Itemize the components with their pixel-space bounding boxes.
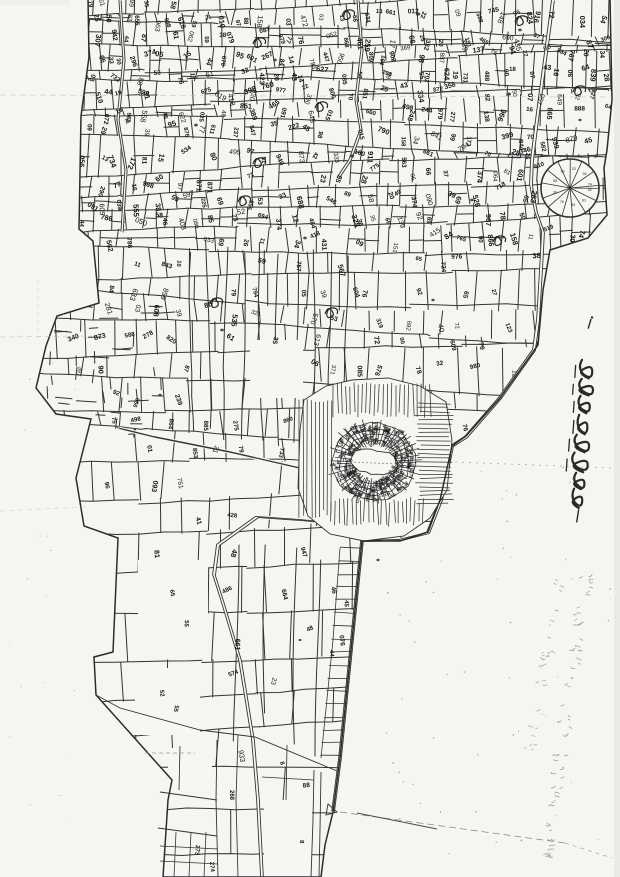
svg-text:283: 283 [528,190,539,204]
svg-text:76: 76 [560,200,564,204]
svg-text:50: 50 [571,203,575,207]
svg-text:90: 90 [477,236,484,244]
svg-text:20: 20 [272,73,280,81]
svg-text:16: 16 [551,68,560,77]
svg-text:90: 90 [96,366,105,374]
svg-text:44: 44 [328,650,334,658]
svg-text:74: 74 [588,183,592,187]
svg-text:963: 963 [153,20,161,32]
svg-text:50: 50 [104,14,112,22]
svg-text:84: 84 [278,58,286,66]
svg-text:58: 58 [366,194,376,204]
svg-text:690: 690 [502,34,514,42]
svg-text:81: 81 [140,157,147,165]
svg-text:488: 488 [483,71,490,82]
svg-text:43: 43 [543,63,551,72]
svg-text:277: 277 [448,111,456,123]
svg-text:75: 75 [388,439,392,443]
svg-text:13: 13 [376,9,384,16]
svg-text:27: 27 [521,50,528,57]
svg-text:69: 69 [425,216,432,224]
svg-text:034: 034 [578,16,587,29]
svg-text:97: 97 [176,182,184,190]
svg-text:46: 46 [161,218,168,226]
svg-text:888: 888 [574,106,585,113]
svg-text:053: 053 [383,431,389,435]
svg-text:07: 07 [528,71,536,79]
svg-text:20: 20 [582,48,590,57]
svg-text:495: 495 [229,149,241,157]
svg-text:81: 81 [152,550,162,559]
svg-text:82: 82 [483,94,491,103]
svg-text:731: 731 [461,73,468,84]
svg-text:39: 39 [561,170,565,174]
svg-text:873: 873 [297,150,307,163]
svg-text:59: 59 [203,36,209,43]
svg-text:65: 65 [553,179,557,183]
svg-text:865: 865 [545,107,555,120]
svg-text:53: 53 [256,197,263,205]
svg-text:26: 26 [524,153,530,161]
svg-text:976: 976 [451,254,462,261]
svg-text:624: 624 [443,68,452,81]
svg-text:227: 227 [399,470,403,476]
svg-text:839: 839 [588,69,598,82]
svg-text:44: 44 [122,35,129,43]
svg-text:259: 259 [363,39,373,52]
svg-text:55: 55 [182,620,189,628]
svg-text:19: 19 [451,71,461,80]
svg-text:90: 90 [400,431,404,435]
svg-text:23: 23 [318,174,328,184]
svg-text:20: 20 [437,39,444,47]
svg-text:151: 151 [391,242,399,254]
svg-text:809: 809 [367,52,374,63]
svg-text:52: 52 [158,690,165,698]
svg-text:911: 911 [365,151,375,164]
svg-text:34: 34 [598,50,605,58]
svg-text:374: 374 [274,218,282,230]
svg-text:45: 45 [342,600,349,608]
svg-text:61: 61 [171,31,181,40]
svg-text:757: 757 [295,261,302,272]
svg-text:87: 87 [139,34,147,43]
svg-text:17: 17 [387,39,397,49]
svg-text:52: 52 [236,207,246,217]
svg-text:871: 871 [195,180,203,192]
svg-text:22: 22 [572,167,576,171]
svg-text:66: 66 [424,167,432,176]
svg-text:88: 88 [353,430,357,434]
svg-text:885: 885 [202,420,209,431]
svg-text:563: 563 [400,157,407,168]
svg-text:56: 56 [410,456,415,461]
svg-text:608: 608 [151,304,161,317]
svg-text:46: 46 [219,110,227,118]
svg-text:70: 70 [527,134,535,141]
svg-text:535: 535 [229,314,239,327]
svg-text:09: 09 [86,124,93,131]
svg-text:88: 88 [242,18,249,25]
svg-text:03: 03 [284,18,291,26]
svg-text:78: 78 [498,211,508,221]
svg-text:28: 28 [602,73,611,82]
svg-text:480: 480 [346,459,352,463]
svg-text:374: 374 [475,171,485,185]
svg-text:32: 32 [588,188,592,192]
svg-text:79: 79 [229,289,236,297]
svg-text:967: 967 [484,214,493,226]
svg-text:979: 979 [436,108,443,120]
svg-text:72: 72 [547,11,554,19]
svg-text:010: 010 [216,15,227,29]
svg-text:431: 431 [320,239,327,251]
svg-text:76: 76 [360,289,368,298]
svg-text:16: 16 [526,106,534,114]
svg-text:66: 66 [407,35,417,45]
svg-text:853: 853 [404,441,410,445]
svg-text:15: 15 [189,73,196,81]
svg-text:853: 853 [191,448,199,460]
svg-text:69: 69 [216,238,224,247]
svg-text:273: 273 [193,845,200,856]
svg-text:38: 38 [532,251,541,261]
svg-text:085: 085 [356,365,363,377]
svg-text:07: 07 [526,93,535,102]
svg-text:307: 307 [93,34,104,48]
svg-text:72: 72 [372,335,382,345]
svg-text:491: 491 [393,431,399,435]
svg-text:83: 83 [126,14,133,22]
svg-text:40: 40 [436,323,446,333]
svg-text:864: 864 [166,418,174,430]
svg-text:627: 627 [316,64,329,74]
svg-text:724: 724 [439,261,447,273]
svg-text:702: 702 [423,72,431,84]
svg-text:085: 085 [340,74,348,86]
svg-text:84: 84 [107,285,115,293]
svg-text:96: 96 [402,458,407,463]
svg-text:55: 55 [388,470,392,474]
svg-text:76: 76 [296,35,306,45]
svg-text:05: 05 [300,289,307,297]
svg-text:05: 05 [155,49,165,59]
svg-text:33: 33 [107,57,113,65]
svg-text:786: 786 [125,237,133,249]
svg-text:871: 871 [205,182,212,194]
svg-text:26: 26 [583,172,587,176]
svg-text:661: 661 [233,639,240,651]
svg-text:61: 61 [336,460,341,465]
svg-text:474: 474 [357,473,362,479]
svg-text:158: 158 [255,15,265,28]
svg-text:38: 38 [153,203,163,212]
svg-text:076: 076 [338,635,346,647]
svg-text:655: 655 [133,15,140,26]
svg-text:649: 649 [555,94,562,105]
svg-text:53: 53 [153,69,161,77]
svg-text:98: 98 [416,54,426,64]
svg-text:887: 887 [438,52,446,63]
svg-text:70: 70 [346,93,353,101]
svg-text:18: 18 [509,66,517,73]
svg-text:50: 50 [356,71,363,79]
svg-text:88: 88 [302,782,310,790]
svg-text:14: 14 [287,55,295,64]
svg-text:692: 692 [404,320,411,331]
svg-text:268: 268 [228,790,234,801]
svg-text:064: 064 [491,171,498,182]
svg-text:374: 374 [410,196,418,208]
svg-text:868: 868 [342,37,349,48]
svg-text:670: 670 [219,55,227,67]
svg-text:237: 237 [231,127,239,139]
svg-text:06: 06 [566,70,573,78]
svg-text:55: 55 [380,482,384,486]
svg-text:61: 61 [582,198,586,202]
svg-text:158: 158 [399,136,405,147]
svg-text:39: 39 [143,129,151,137]
svg-text:30: 30 [568,234,577,243]
svg-text:30: 30 [553,191,557,195]
